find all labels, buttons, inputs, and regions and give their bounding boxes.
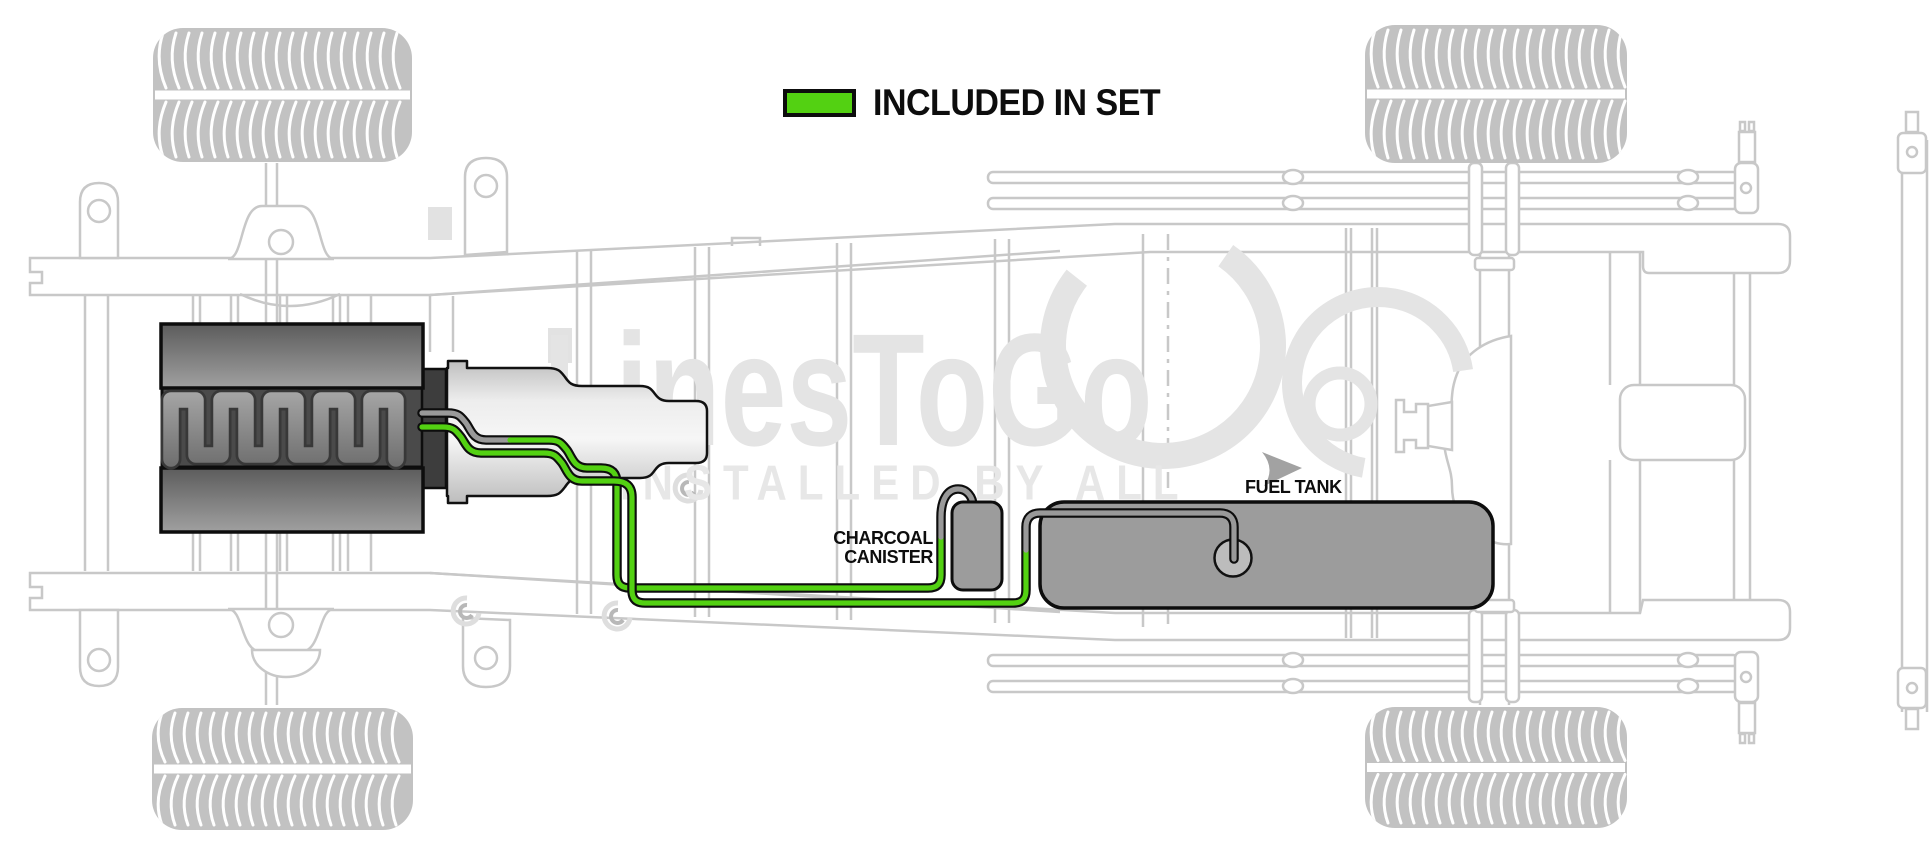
diagram-stage: LinesToGo INSTALLED BY ALL — [0, 0, 1930, 841]
charcoal-canister-label: CHARCOAL CANISTER — [733, 529, 933, 566]
legend: INCLUDED IN SET — [783, 86, 1160, 120]
charcoal-label-line1: CHARCOAL — [733, 529, 933, 548]
fuel-tank — [1040, 502, 1493, 608]
fuel-tank-label: FUEL TANK — [1245, 477, 1342, 498]
legend-label: INCLUDED IN SET — [873, 85, 1160, 122]
legend-color-swatch — [783, 89, 856, 117]
engine-block-bottom — [161, 468, 423, 532]
engine-block-top — [161, 324, 423, 388]
charcoal-label-line2: CANISTER — [733, 548, 933, 567]
charcoal-canister — [952, 502, 1002, 590]
engine — [161, 324, 446, 532]
fuel-system-diagram — [0, 0, 1930, 841]
